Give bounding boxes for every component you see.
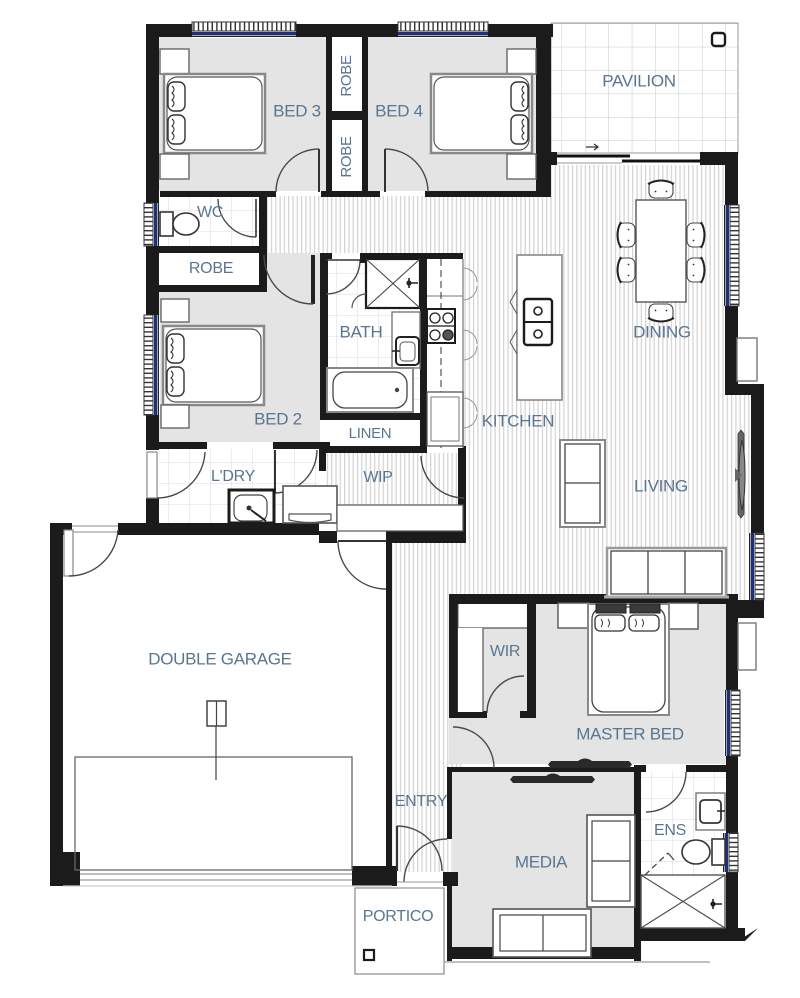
svg-text:PAVILION: PAVILION bbox=[602, 71, 676, 90]
svg-text:MEDIA: MEDIA bbox=[515, 852, 568, 871]
svg-text:MASTER BED: MASTER BED bbox=[576, 724, 684, 743]
svg-text:BED 2: BED 2 bbox=[254, 409, 302, 428]
svg-text:BATH: BATH bbox=[340, 322, 383, 341]
svg-text:KITCHEN: KITCHEN bbox=[482, 411, 555, 430]
svg-text:WC: WC bbox=[197, 204, 223, 221]
svg-text:ENTRY: ENTRY bbox=[395, 793, 448, 810]
svg-text:LIVING: LIVING bbox=[634, 476, 688, 495]
svg-text:BED 4: BED 4 bbox=[375, 101, 423, 120]
svg-text:WIP: WIP bbox=[363, 469, 392, 486]
svg-text:L'DRY: L'DRY bbox=[211, 468, 256, 485]
svg-text:WIR: WIR bbox=[490, 643, 520, 660]
svg-text:DINING: DINING bbox=[633, 322, 691, 341]
svg-text:ROBE: ROBE bbox=[338, 136, 355, 178]
svg-text:DOUBLE GARAGE: DOUBLE GARAGE bbox=[148, 649, 291, 668]
svg-text:LINEN: LINEN bbox=[349, 425, 392, 442]
svg-text:ROBE: ROBE bbox=[338, 55, 355, 97]
svg-text:BED 3: BED 3 bbox=[273, 101, 321, 120]
svg-text:ROBE: ROBE bbox=[189, 260, 233, 277]
svg-text:PORTICO: PORTICO bbox=[363, 908, 434, 925]
svg-text:ENS: ENS bbox=[654, 822, 686, 839]
